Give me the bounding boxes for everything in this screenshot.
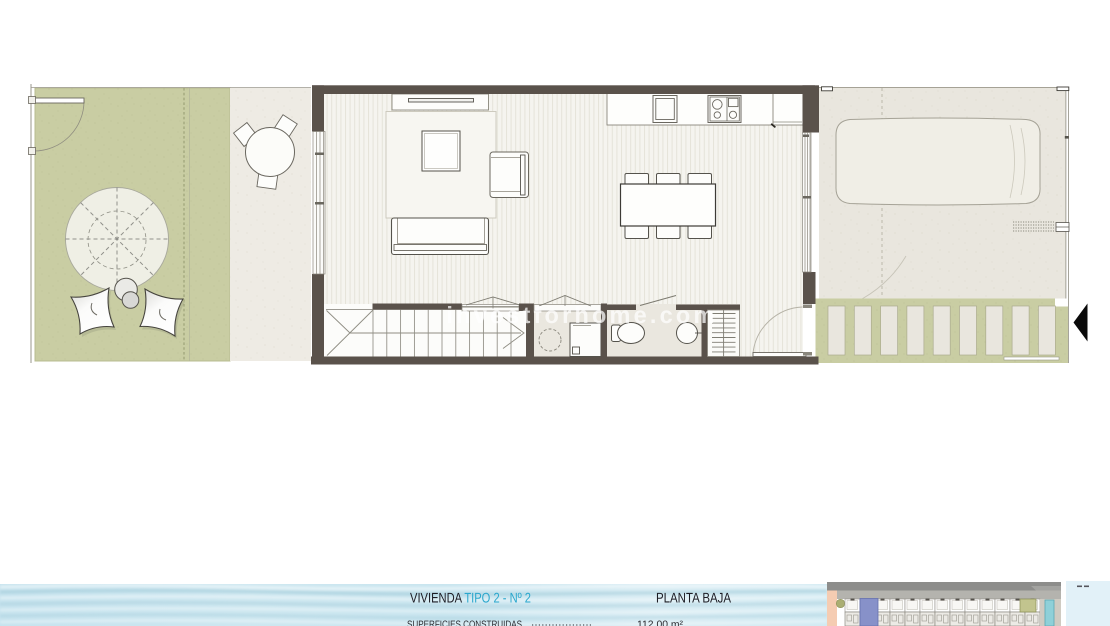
svg-text:PLANTA BAJA: PLANTA BAJA	[656, 590, 732, 606]
svg-text:VIVIENDA TIPO 2 - Nº 2: VIVIENDA TIPO 2 - Nº 2	[410, 590, 531, 606]
svg-text:SUPERFICIES CONSTRUIDAS: SUPERFICIES CONSTRUIDAS	[407, 620, 522, 626]
svg-text:112,00 m²: 112,00 m²	[637, 620, 684, 626]
svg-text:investforhome.com: investforhome.com	[446, 302, 717, 328]
